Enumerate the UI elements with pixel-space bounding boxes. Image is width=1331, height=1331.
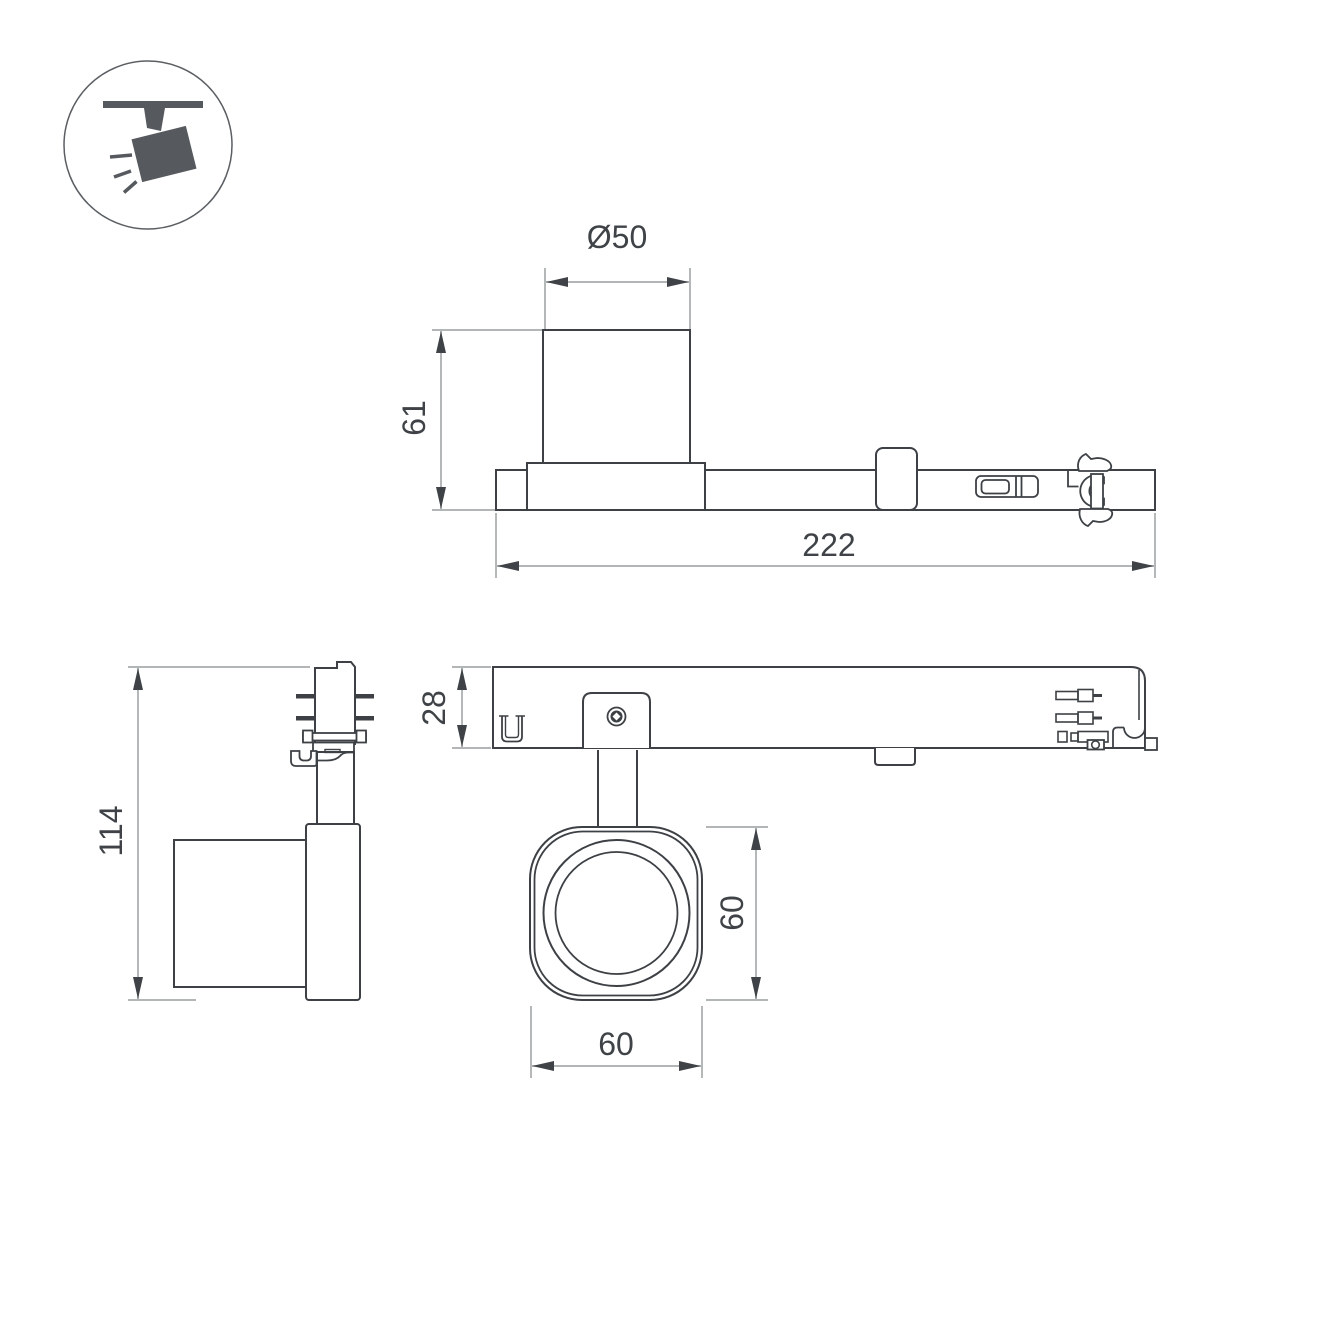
lens-ring bbox=[544, 840, 690, 986]
flange-tab bbox=[357, 731, 367, 743]
locking-hook bbox=[291, 751, 317, 766]
contact-pin bbox=[355, 694, 374, 699]
dim-label-length-222: 222 bbox=[802, 527, 855, 563]
latch-lower-wing bbox=[1079, 509, 1112, 526]
bottom-view: 28 60 60 bbox=[416, 667, 1157, 1078]
lamp-body-cylinder bbox=[543, 330, 690, 463]
arrowhead-up bbox=[751, 828, 761, 850]
lock-lever-bottom bbox=[875, 748, 915, 765]
arrowhead-up bbox=[133, 668, 143, 690]
arrowhead-left bbox=[497, 561, 519, 571]
dim-label-head-height-60: 60 bbox=[714, 895, 750, 931]
arrowhead-right bbox=[679, 1061, 701, 1071]
icon-light-rays bbox=[110, 155, 137, 193]
arrowhead-down bbox=[133, 977, 143, 999]
lamp-head-front bbox=[530, 827, 702, 1000]
latch-plate bbox=[1091, 474, 1103, 509]
dim-label-diameter: Ø50 bbox=[587, 219, 647, 255]
arrowhead-up bbox=[457, 668, 467, 690]
icon-lamp-head bbox=[132, 126, 197, 182]
flange-tab bbox=[303, 731, 313, 743]
lamp-head-side bbox=[306, 824, 360, 1000]
dim-label-head-width-60: 60 bbox=[598, 1026, 634, 1062]
arrowhead-down bbox=[436, 487, 446, 509]
arrowhead-up bbox=[436, 331, 446, 353]
side-view: Ø50 61 222 bbox=[396, 219, 1155, 578]
track-spotlight-icon bbox=[64, 61, 232, 229]
dim-label-height-61: 61 bbox=[396, 400, 432, 436]
arrowhead-down bbox=[457, 725, 467, 747]
dim-label-track-height-28: 28 bbox=[416, 690, 452, 726]
stem-bottom-view bbox=[598, 750, 637, 826]
lock-lever-bump bbox=[876, 448, 917, 510]
arrowhead-left bbox=[532, 1061, 554, 1071]
adapter-base bbox=[527, 463, 705, 510]
dimension-head-height-60: 60 bbox=[706, 827, 768, 1000]
switch-knob bbox=[982, 480, 1010, 494]
arrowhead-left bbox=[546, 277, 568, 287]
selector-switch bbox=[976, 476, 1038, 497]
technical-drawing: Ø50 61 222 bbox=[0, 0, 1331, 1331]
arrowhead-right bbox=[667, 277, 689, 287]
dimension-track-height-28: 28 bbox=[416, 667, 491, 748]
icon-mount-stem bbox=[144, 108, 165, 131]
contact-pin bbox=[296, 694, 315, 699]
contact-pin bbox=[296, 716, 315, 721]
dimension-head-width-60: 60 bbox=[531, 1006, 702, 1078]
arrowhead-right bbox=[1132, 561, 1154, 571]
lamp-body-side bbox=[174, 840, 306, 987]
contact-pin bbox=[355, 716, 374, 721]
dimension-length-222: 222 bbox=[496, 513, 1155, 578]
end-view: 114 bbox=[93, 662, 374, 1000]
dimension-diameter: Ø50 bbox=[545, 219, 690, 329]
fixing-screw bbox=[608, 708, 626, 726]
arrowhead-down bbox=[751, 977, 761, 999]
end-tab bbox=[1145, 738, 1157, 750]
dim-label-height-114: 114 bbox=[93, 805, 129, 856]
icon-ceiling-track-bar bbox=[103, 101, 203, 108]
adapter-housing bbox=[313, 743, 354, 753]
latch-upper-wing bbox=[1078, 454, 1111, 471]
yoke-stem bbox=[317, 752, 354, 825]
drawing-page: Ø50 61 222 bbox=[0, 0, 1331, 1331]
